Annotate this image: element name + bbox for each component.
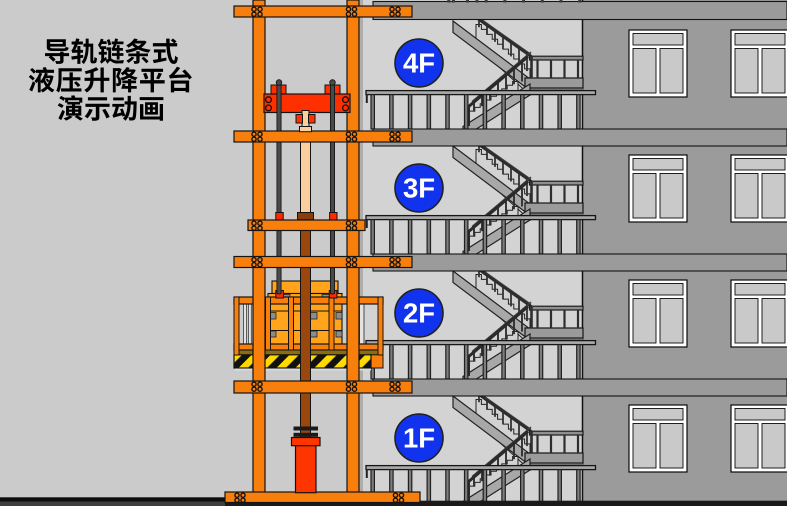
- svg-text:1F: 1F: [403, 423, 435, 454]
- svg-text:3F: 3F: [403, 173, 435, 204]
- svg-text:4F: 4F: [403, 48, 435, 79]
- svg-text:2F: 2F: [403, 298, 435, 329]
